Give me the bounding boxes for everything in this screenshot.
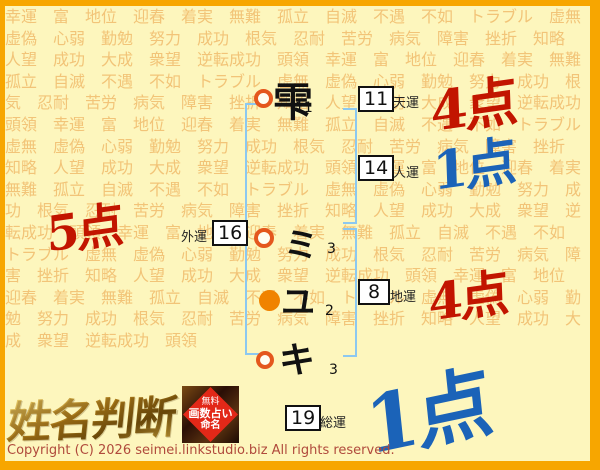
char-marker-2 [254,228,274,248]
stamp-line-3: 命名 [201,420,221,432]
char-marker-3 [259,290,280,311]
jinun-label: 人運 [393,162,419,181]
name-char-2: ミ [284,218,318,267]
stroke-count-3: 2 [325,303,334,319]
tenun-value-box: 11 [358,86,394,112]
gaiun-value-box: 16 [212,220,248,246]
jinun-value-box: 14 [358,155,394,181]
name-char-3: ユ [281,275,315,324]
gaiun-score: 5点 [45,185,122,266]
soun-value-box: 19 [285,405,321,431]
seimei-handan-page: 幸運 富 地位 迎春 着実 無難 孤立 自滅 不遇 不如 トラブル 虚無 虚偽 … [0,0,600,470]
copyright-text: Copyright (C) 2026 seimei.linkstudio.biz… [7,443,395,458]
jinun-score: 1点 [431,118,515,205]
name-char-4: キ [279,331,315,383]
site-logo[interactable]: 姓名判断 [5,381,180,451]
tenun-label: 天運 [393,92,419,111]
free-naming-stamp-badge[interactable]: 無料 画数占い 命名 [182,386,239,443]
stamp-line-1: 無料 [201,397,219,407]
chiun-label: 地運 [390,286,416,305]
stroke-count-2: 3 [327,241,336,257]
gaiun-label: 外運 [181,226,207,245]
char-marker-1 [254,89,273,108]
stroke-count-4: 3 [329,362,338,378]
name-char-1: 雫 [273,70,313,128]
stroke-count-1: 11 [295,100,313,116]
stamp-text: 無料 画数占い 命名 [182,386,239,443]
chiun-score: 4点 [427,252,508,335]
bottom-orange-bar [0,461,600,470]
char-marker-4 [256,351,274,369]
chiun-bracket [343,228,357,357]
jinun-bracket [343,108,357,224]
soun-label: 総運 [320,412,346,431]
chiun-value-box: 8 [358,279,390,305]
stamp-line-2: 画数占い [189,407,233,420]
